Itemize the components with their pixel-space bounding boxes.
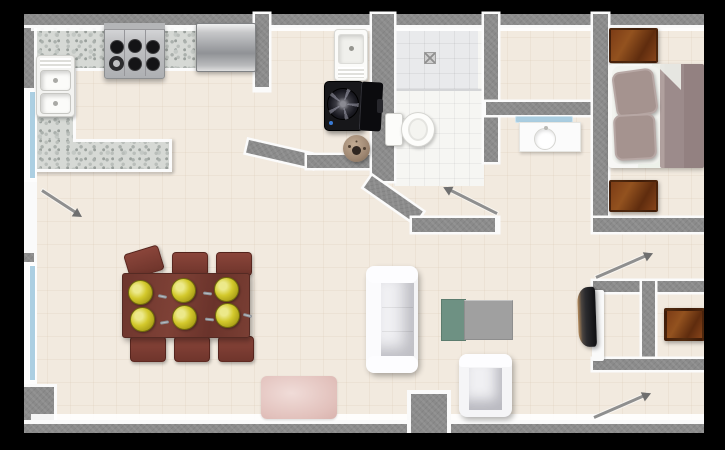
vanity-faucet (544, 126, 548, 130)
console-table-green[interactable] (441, 299, 466, 341)
wall-bedroom-left (593, 14, 608, 232)
armchair-backrest (459, 354, 512, 367)
sofa-armrest (366, 356, 418, 373)
kitchen-counter-peninsula[interactable] (33, 139, 172, 172)
place-setting (128, 280, 153, 305)
wall-bottom (24, 420, 705, 433)
refrigerator[interactable] (196, 23, 256, 72)
armchair-seat (469, 368, 502, 410)
place-setting (214, 277, 239, 302)
utility-drainboard (338, 67, 364, 78)
wall-mounted-tv[interactable] (577, 287, 597, 348)
shower-drain-icon (424, 52, 436, 64)
washer-indicator (329, 121, 333, 125)
wall-wardrobe-divider (642, 281, 655, 370)
utility-drain (349, 46, 354, 51)
washer-lid-handle (377, 99, 383, 113)
console-table-gray[interactable] (464, 300, 513, 340)
dining-chair[interactable] (218, 336, 254, 362)
place-setting (172, 305, 197, 330)
wall-kitchen-divider (255, 14, 269, 90)
wall-stub-patio (407, 390, 451, 433)
wall-bathroom-right (484, 14, 498, 162)
nightstand-top[interactable] (609, 28, 658, 63)
sink-drainboard (40, 58, 71, 68)
counter-edge (33, 169, 172, 172)
place-setting (215, 303, 240, 328)
bed-blanket (660, 64, 704, 168)
toilet-seat (408, 118, 428, 141)
window-glass (29, 91, 36, 179)
dining-chair[interactable] (130, 336, 166, 362)
pink-rug[interactable] (261, 376, 337, 419)
nightstand-bottom[interactable] (609, 180, 658, 212)
floor-plan (0, 0, 725, 450)
shower-area (394, 28, 478, 90)
sofa-cushion-seam (382, 307, 413, 308)
vanity-sink (534, 128, 556, 150)
stove-control-panel (104, 23, 165, 30)
burner (128, 39, 142, 53)
window-glass (29, 265, 36, 381)
viewport-crop (704, 0, 725, 450)
shower-screen (394, 89, 484, 91)
sofa-cushion-seam (382, 331, 413, 332)
wall-bathroom-bottom (412, 218, 498, 232)
washer-drum-spokes (327, 88, 359, 120)
burner (128, 57, 142, 71)
wardrobe-dresser[interactable] (664, 308, 705, 341)
burner-ring (109, 56, 124, 71)
place-setting (130, 307, 155, 332)
wall-bedroom-bottom (593, 218, 705, 232)
sofa-armrest (366, 266, 418, 283)
burner (146, 40, 160, 54)
wall-left-mid (24, 253, 37, 262)
burner (110, 40, 124, 54)
fan-hub (352, 146, 361, 155)
place-setting (171, 278, 196, 303)
dining-chair[interactable] (174, 336, 210, 362)
pillow (613, 113, 657, 161)
stove-grate (145, 29, 146, 76)
counter-edge (73, 139, 172, 142)
sink-drain (53, 78, 58, 83)
wall-wardrobe-bottom (593, 359, 705, 370)
wall-laundry-bottom (307, 155, 380, 168)
stove-grate (124, 29, 125, 76)
entry-door-opening[interactable] (24, 182, 37, 253)
pillow (611, 67, 659, 118)
sofa-seat (381, 283, 414, 356)
wall-closet-divider (486, 102, 594, 115)
burner (146, 57, 160, 71)
counter-edge (169, 139, 172, 172)
sink-drain (53, 101, 58, 106)
